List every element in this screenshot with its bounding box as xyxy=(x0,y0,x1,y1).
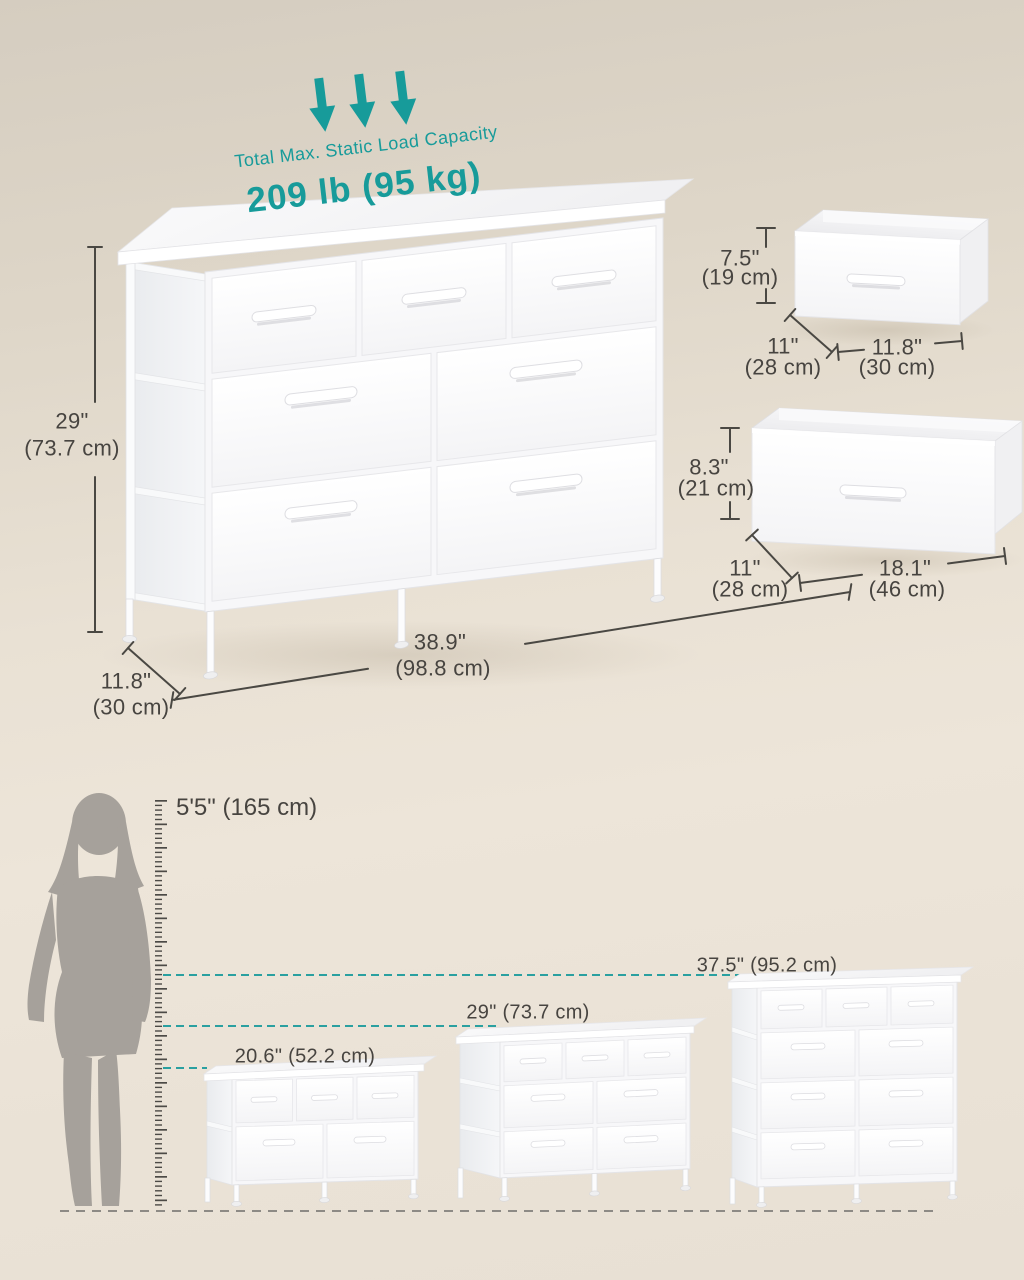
large-dresser-height-label: 37.5" (95.2 cm) xyxy=(697,956,838,977)
load-arrow-icons xyxy=(306,70,419,134)
large-dresser-illustration xyxy=(728,967,973,1208)
large-drawer-bin-illustration xyxy=(745,408,1024,578)
main-height-cm: (73.7 cm) xyxy=(24,436,120,459)
person-silhouette-icon xyxy=(28,793,152,1206)
main-dresser-illustration xyxy=(100,179,700,689)
height-ruler xyxy=(155,800,168,1208)
medium-dresser-height-label: 29" (73.7 cm) xyxy=(466,1003,589,1024)
large-bin-depth-cm: (28 cm) xyxy=(712,577,789,600)
small-bin-depth-cm: (28 cm) xyxy=(745,355,822,378)
main-width-in: 38.9" xyxy=(414,630,466,653)
small-dresser-height-label: 20.6" (52.2 cm) xyxy=(235,1047,376,1068)
person-height-label: 5'5" (165 cm) xyxy=(176,794,317,822)
small-drawer-bin-illustration xyxy=(775,210,995,346)
large-bin-height-cm: (21 cm) xyxy=(678,476,755,499)
small-bin-width-cm: (30 cm) xyxy=(859,355,936,378)
main-depth-in: 11.8" xyxy=(101,669,152,692)
small-dresser-illustration xyxy=(204,1056,436,1207)
scene-graphics xyxy=(0,0,1024,1280)
large-bin-width-cm: (46 cm) xyxy=(869,577,946,600)
main-width-cm: (98.8 cm) xyxy=(395,656,491,679)
main-depth-cm: (30 cm) xyxy=(93,695,170,718)
medium-dresser-illustration xyxy=(456,1018,706,1202)
product-dimension-infographic: Total Max. Static Load Capacity 209 lb (… xyxy=(0,0,1024,1280)
small-bin-height-cm: (19 cm) xyxy=(702,265,779,288)
main-height-in: 29" xyxy=(55,409,88,432)
